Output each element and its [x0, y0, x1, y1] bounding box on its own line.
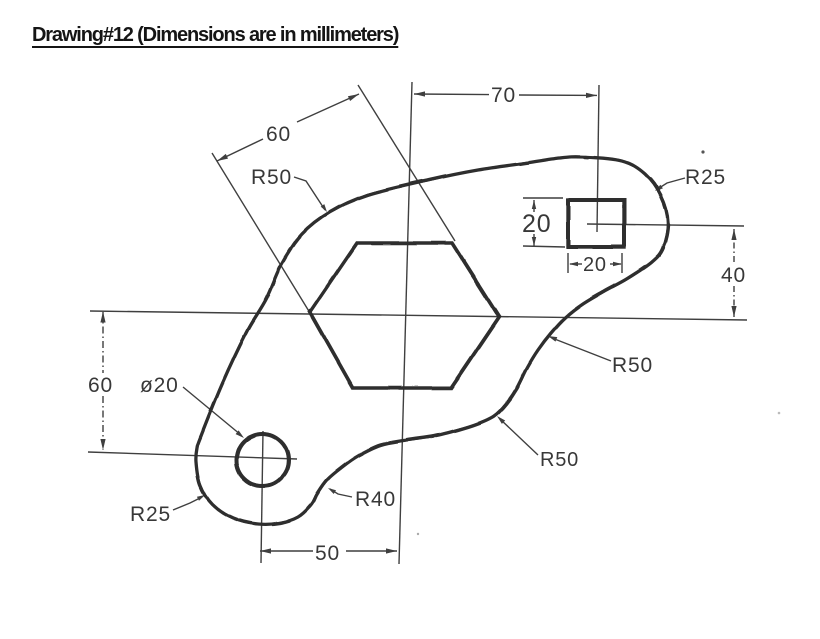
svg-text:R50: R50 — [540, 449, 579, 471]
svg-text:40: 40 — [721, 264, 746, 287]
svg-text:20: 20 — [522, 210, 551, 238]
svg-text:60: 60 — [88, 374, 113, 397]
svg-text:R50: R50 — [612, 354, 653, 377]
svg-text:50: 50 — [315, 542, 340, 565]
svg-text:R25: R25 — [685, 166, 726, 189]
svg-text:ø20: ø20 — [140, 374, 179, 397]
svg-text:70: 70 — [491, 84, 516, 107]
svg-text:60: 60 — [266, 123, 291, 146]
svg-text:R40: R40 — [355, 488, 396, 511]
svg-text:R50: R50 — [251, 166, 292, 189]
svg-text:R25: R25 — [130, 503, 171, 526]
svg-text:20: 20 — [583, 254, 607, 276]
